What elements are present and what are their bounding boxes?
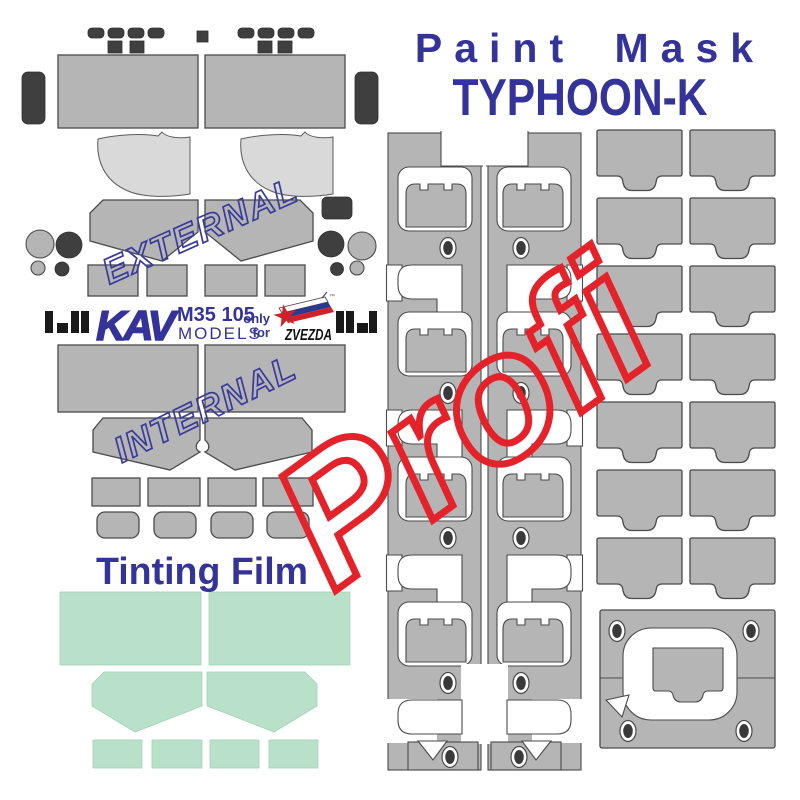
strip-cutout	[461, 664, 483, 744]
tinting-film-title: Tinting Film	[96, 551, 308, 593]
reg-mark	[369, 311, 377, 333]
registration-marks-left	[45, 311, 89, 333]
mask-piece	[350, 261, 364, 275]
hatch-plate	[597, 470, 682, 531]
eyelet	[442, 747, 458, 768]
mask-piece	[26, 230, 54, 258]
mask-piece	[152, 740, 202, 768]
for-label: for	[253, 325, 270, 340]
mask-piece	[93, 740, 142, 768]
registration-marks-right	[336, 311, 377, 333]
reg-mark	[81, 311, 89, 333]
windshield-mask-right	[205, 55, 345, 128]
mask-piece	[318, 231, 344, 257]
hatch-plate	[690, 198, 775, 259]
strip-castle-mask	[406, 184, 466, 227]
mask-piece	[211, 512, 253, 538]
tint-windshield-right	[209, 592, 350, 665]
mask-piece	[258, 41, 272, 53]
mask-piece	[148, 478, 200, 506]
mask-piece	[331, 263, 344, 276]
title-block: Paint Mask TYPHOON-K	[415, 25, 765, 127]
mask-piece	[258, 28, 274, 38]
eyelet	[440, 673, 456, 694]
external-masks-group	[22, 28, 378, 296]
hatch-plate	[690, 266, 775, 327]
hatch-plate	[597, 198, 682, 259]
reg-mark	[336, 311, 344, 333]
eyelet	[620, 721, 636, 742]
mask-piece	[56, 232, 82, 258]
tint-side-window-left	[92, 672, 202, 732]
kav-models-label: MODELS	[178, 324, 262, 343]
strip-cutout	[441, 131, 483, 166]
mask-sheet-canvas: EXTERNAL KAV M35 105 MODELS only for ™ ★…	[0, 0, 800, 800]
kav-logo: KAV	[96, 302, 179, 349]
eyelet	[609, 621, 625, 642]
hatch-plate	[690, 538, 775, 599]
windshield-mask-left	[58, 55, 198, 128]
mask-piece	[269, 740, 318, 768]
only-label: only	[243, 311, 270, 326]
mask-piece	[130, 41, 144, 53]
mask-piece	[238, 28, 254, 38]
hatch-plate	[690, 130, 775, 191]
trademark-symbol: ™	[329, 293, 335, 300]
reg-mark	[357, 323, 368, 333]
wiper-fan-mask-left	[98, 132, 190, 196]
zvezda-logo: ™ ★ ZVEZDA	[269, 292, 335, 344]
mask-piece	[154, 512, 196, 538]
mask-piece	[197, 31, 208, 42]
zvezda-wordmark: ZVEZDA	[284, 327, 332, 344]
eyelet	[440, 238, 456, 259]
mask-piece	[55, 262, 69, 276]
eyelet	[736, 721, 752, 742]
mask-piece	[210, 740, 259, 768]
periscope-masks	[88, 28, 314, 53]
tint-windshield-left	[60, 592, 201, 665]
mask-piece	[205, 265, 257, 296]
reg-mark	[346, 311, 354, 333]
mask-piece	[31, 261, 45, 275]
hatch-plate	[597, 130, 682, 191]
mask-piece	[278, 41, 292, 53]
paint-mask-sheet: EXTERNAL KAV M35 105 MODELS only for ™ ★…	[0, 0, 800, 800]
reg-mark	[57, 323, 68, 333]
tint-lower-windows	[93, 740, 318, 768]
mask-piece	[88, 28, 104, 38]
hatch-plate	[690, 402, 775, 463]
mask-piece	[208, 478, 256, 506]
mask-piece	[322, 197, 352, 219]
tint-side-window-right	[207, 672, 317, 732]
strip-channel-cutout	[398, 700, 462, 734]
tinting-film-group	[60, 592, 350, 768]
page-title-line2: TYPHOON-K	[453, 69, 708, 127]
mask-piece	[348, 232, 376, 260]
mask-piece	[298, 28, 314, 38]
hatch-plate	[597, 538, 682, 599]
pillar-mask-right	[355, 72, 378, 124]
mask-piece	[278, 28, 294, 38]
hatch-square-mask	[600, 610, 775, 748]
mask-piece	[92, 478, 140, 506]
mask-piece	[148, 28, 164, 38]
mask-piece	[265, 265, 305, 296]
strip-castle-mask	[406, 619, 466, 662]
mask-piece	[108, 28, 124, 38]
mask-piece	[128, 28, 144, 38]
hatch-plate	[690, 334, 775, 395]
eyelet	[743, 621, 759, 642]
mask-piece	[97, 512, 139, 538]
reg-mark	[71, 311, 79, 333]
pillar-mask-left	[22, 72, 45, 124]
brand-row: KAV M35 105 MODELS only for ™ ★ ZVEZDA	[45, 292, 377, 349]
hatch-plate	[690, 470, 775, 531]
page-title-line1: Paint Mask	[415, 25, 765, 71]
reg-mark	[45, 311, 53, 333]
mask-piece	[108, 41, 122, 53]
